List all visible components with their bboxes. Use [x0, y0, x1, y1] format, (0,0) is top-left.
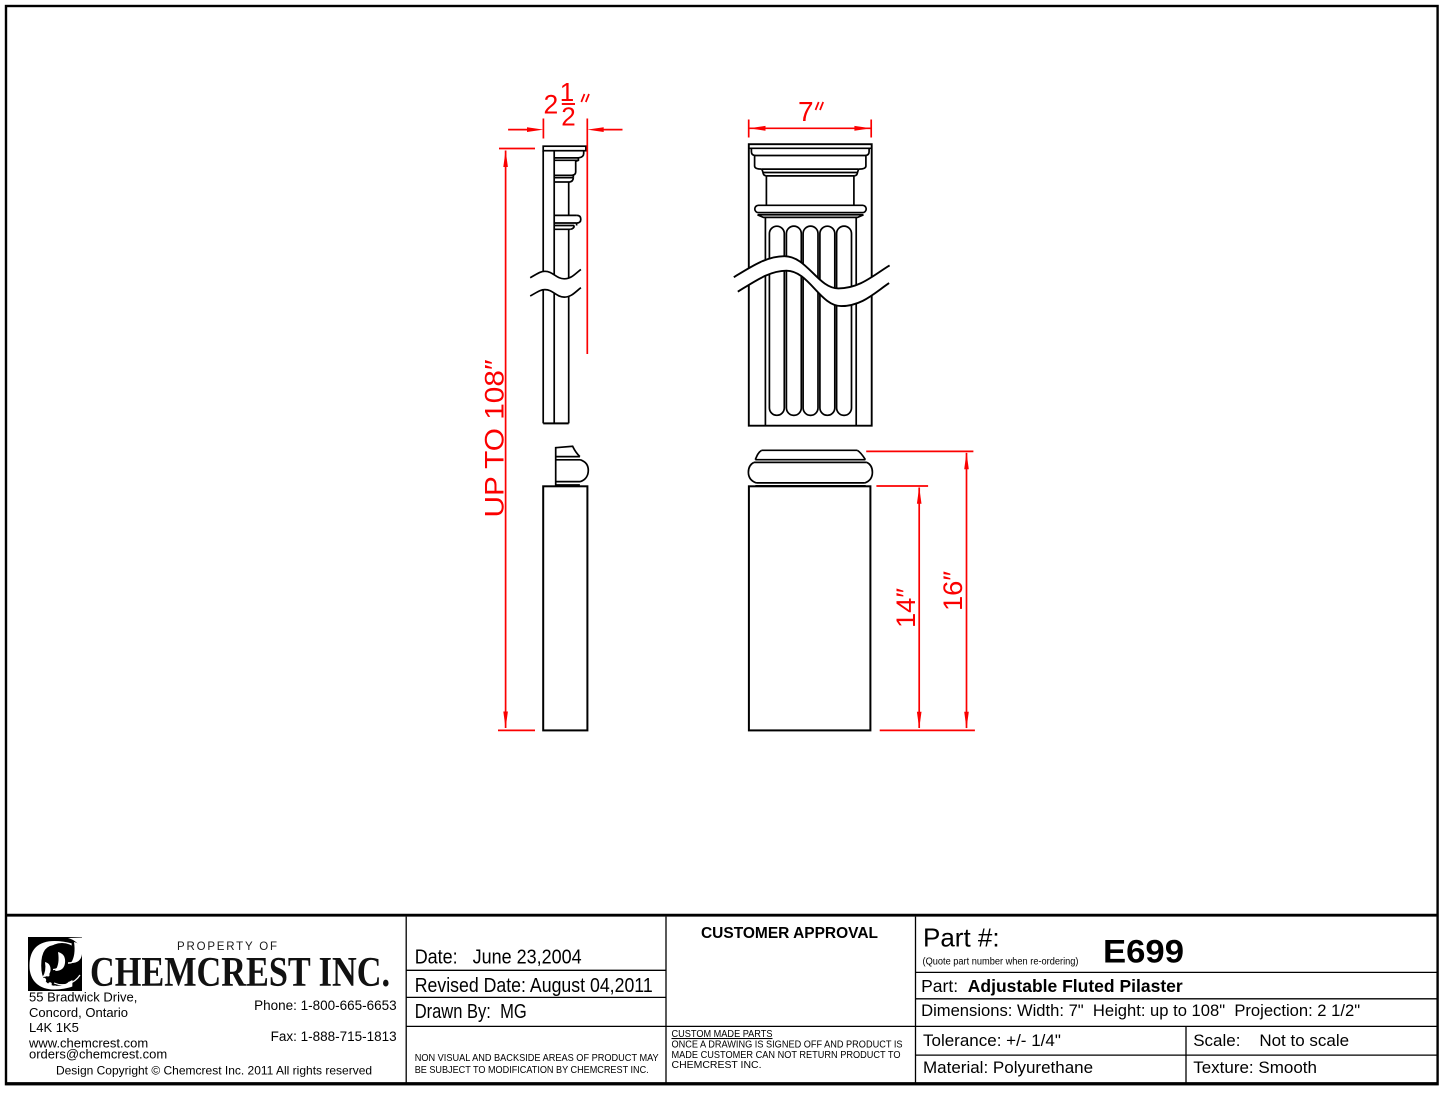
- svg-text:Date: June 23,2004: Date: June 23,2004: [415, 946, 582, 969]
- svg-text:NON VISUAL AND BACKSIDE AREAS: NON VISUAL AND BACKSIDE AREAS OF PRODUCT…: [415, 1053, 659, 1064]
- svg-text:14″: 14″: [891, 588, 921, 628]
- svg-text:2: 2: [561, 101, 575, 131]
- svg-text:Part: Adjustable Fluted Pilas: Part: Adjustable Fluted Pilaster: [921, 976, 1183, 996]
- svg-text:orders@chemcrest.com: orders@chemcrest.com: [29, 1047, 167, 1062]
- svg-text:Drawn By: MG: Drawn By: MG: [415, 1000, 527, 1023]
- svg-text:16″: 16″: [938, 571, 968, 611]
- svg-text:7: 7: [798, 96, 814, 127]
- svg-text:E699: E699: [1103, 933, 1184, 969]
- svg-text:CUSTOMER APPROVAL: CUSTOMER APPROVAL: [701, 925, 878, 942]
- svg-text:Part #:: Part #:: [923, 923, 1000, 953]
- svg-text:BE SUBJECT TO MODIFICATION BY: BE SUBJECT TO MODIFICATION BY CHEMCREST …: [415, 1065, 649, 1076]
- svg-text:Fax: 1-888-715-1813: Fax: 1-888-715-1813: [271, 1029, 397, 1044]
- svg-text:Texture: Smooth: Texture: Smooth: [1193, 1058, 1317, 1077]
- svg-text:UP TO 108″: UP TO 108″: [480, 359, 510, 517]
- svg-text:L4K 1K5: L4K 1K5: [29, 1020, 79, 1035]
- svg-text:Phone: 1-800-665-6653: Phone: 1-800-665-6653: [254, 998, 397, 1013]
- svg-text:Material: Polyurethane: Material: Polyurethane: [923, 1058, 1093, 1077]
- svg-text:Design Copyright © Chemcrest I: Design Copyright © Chemcrest Inc. 2011 A…: [56, 1064, 372, 1078]
- svg-text:Revised Date: August 04,2011: Revised Date: August 04,2011: [415, 974, 653, 997]
- svg-text:Dimensions: Width: 7" Height:: Dimensions: Width: 7" Height: up to 108"…: [921, 1001, 1360, 1020]
- svg-text:CHEMCREST INC.: CHEMCREST INC.: [672, 1059, 762, 1071]
- svg-text:Tolerance: +/- 1/4": Tolerance: +/- 1/4": [923, 1031, 1061, 1050]
- svg-text:(Quote part number when re-ord: (Quote part number when re-ordering): [923, 956, 1079, 967]
- svg-text:Scale: Not to scale: Scale: Not to scale: [1193, 1031, 1349, 1050]
- svg-text:55 Bradwick Drive,: 55 Bradwick Drive,: [29, 990, 137, 1005]
- svg-text:Concord, Ontario: Concord, Ontario: [29, 1005, 128, 1020]
- svg-text:2: 2: [544, 89, 559, 119]
